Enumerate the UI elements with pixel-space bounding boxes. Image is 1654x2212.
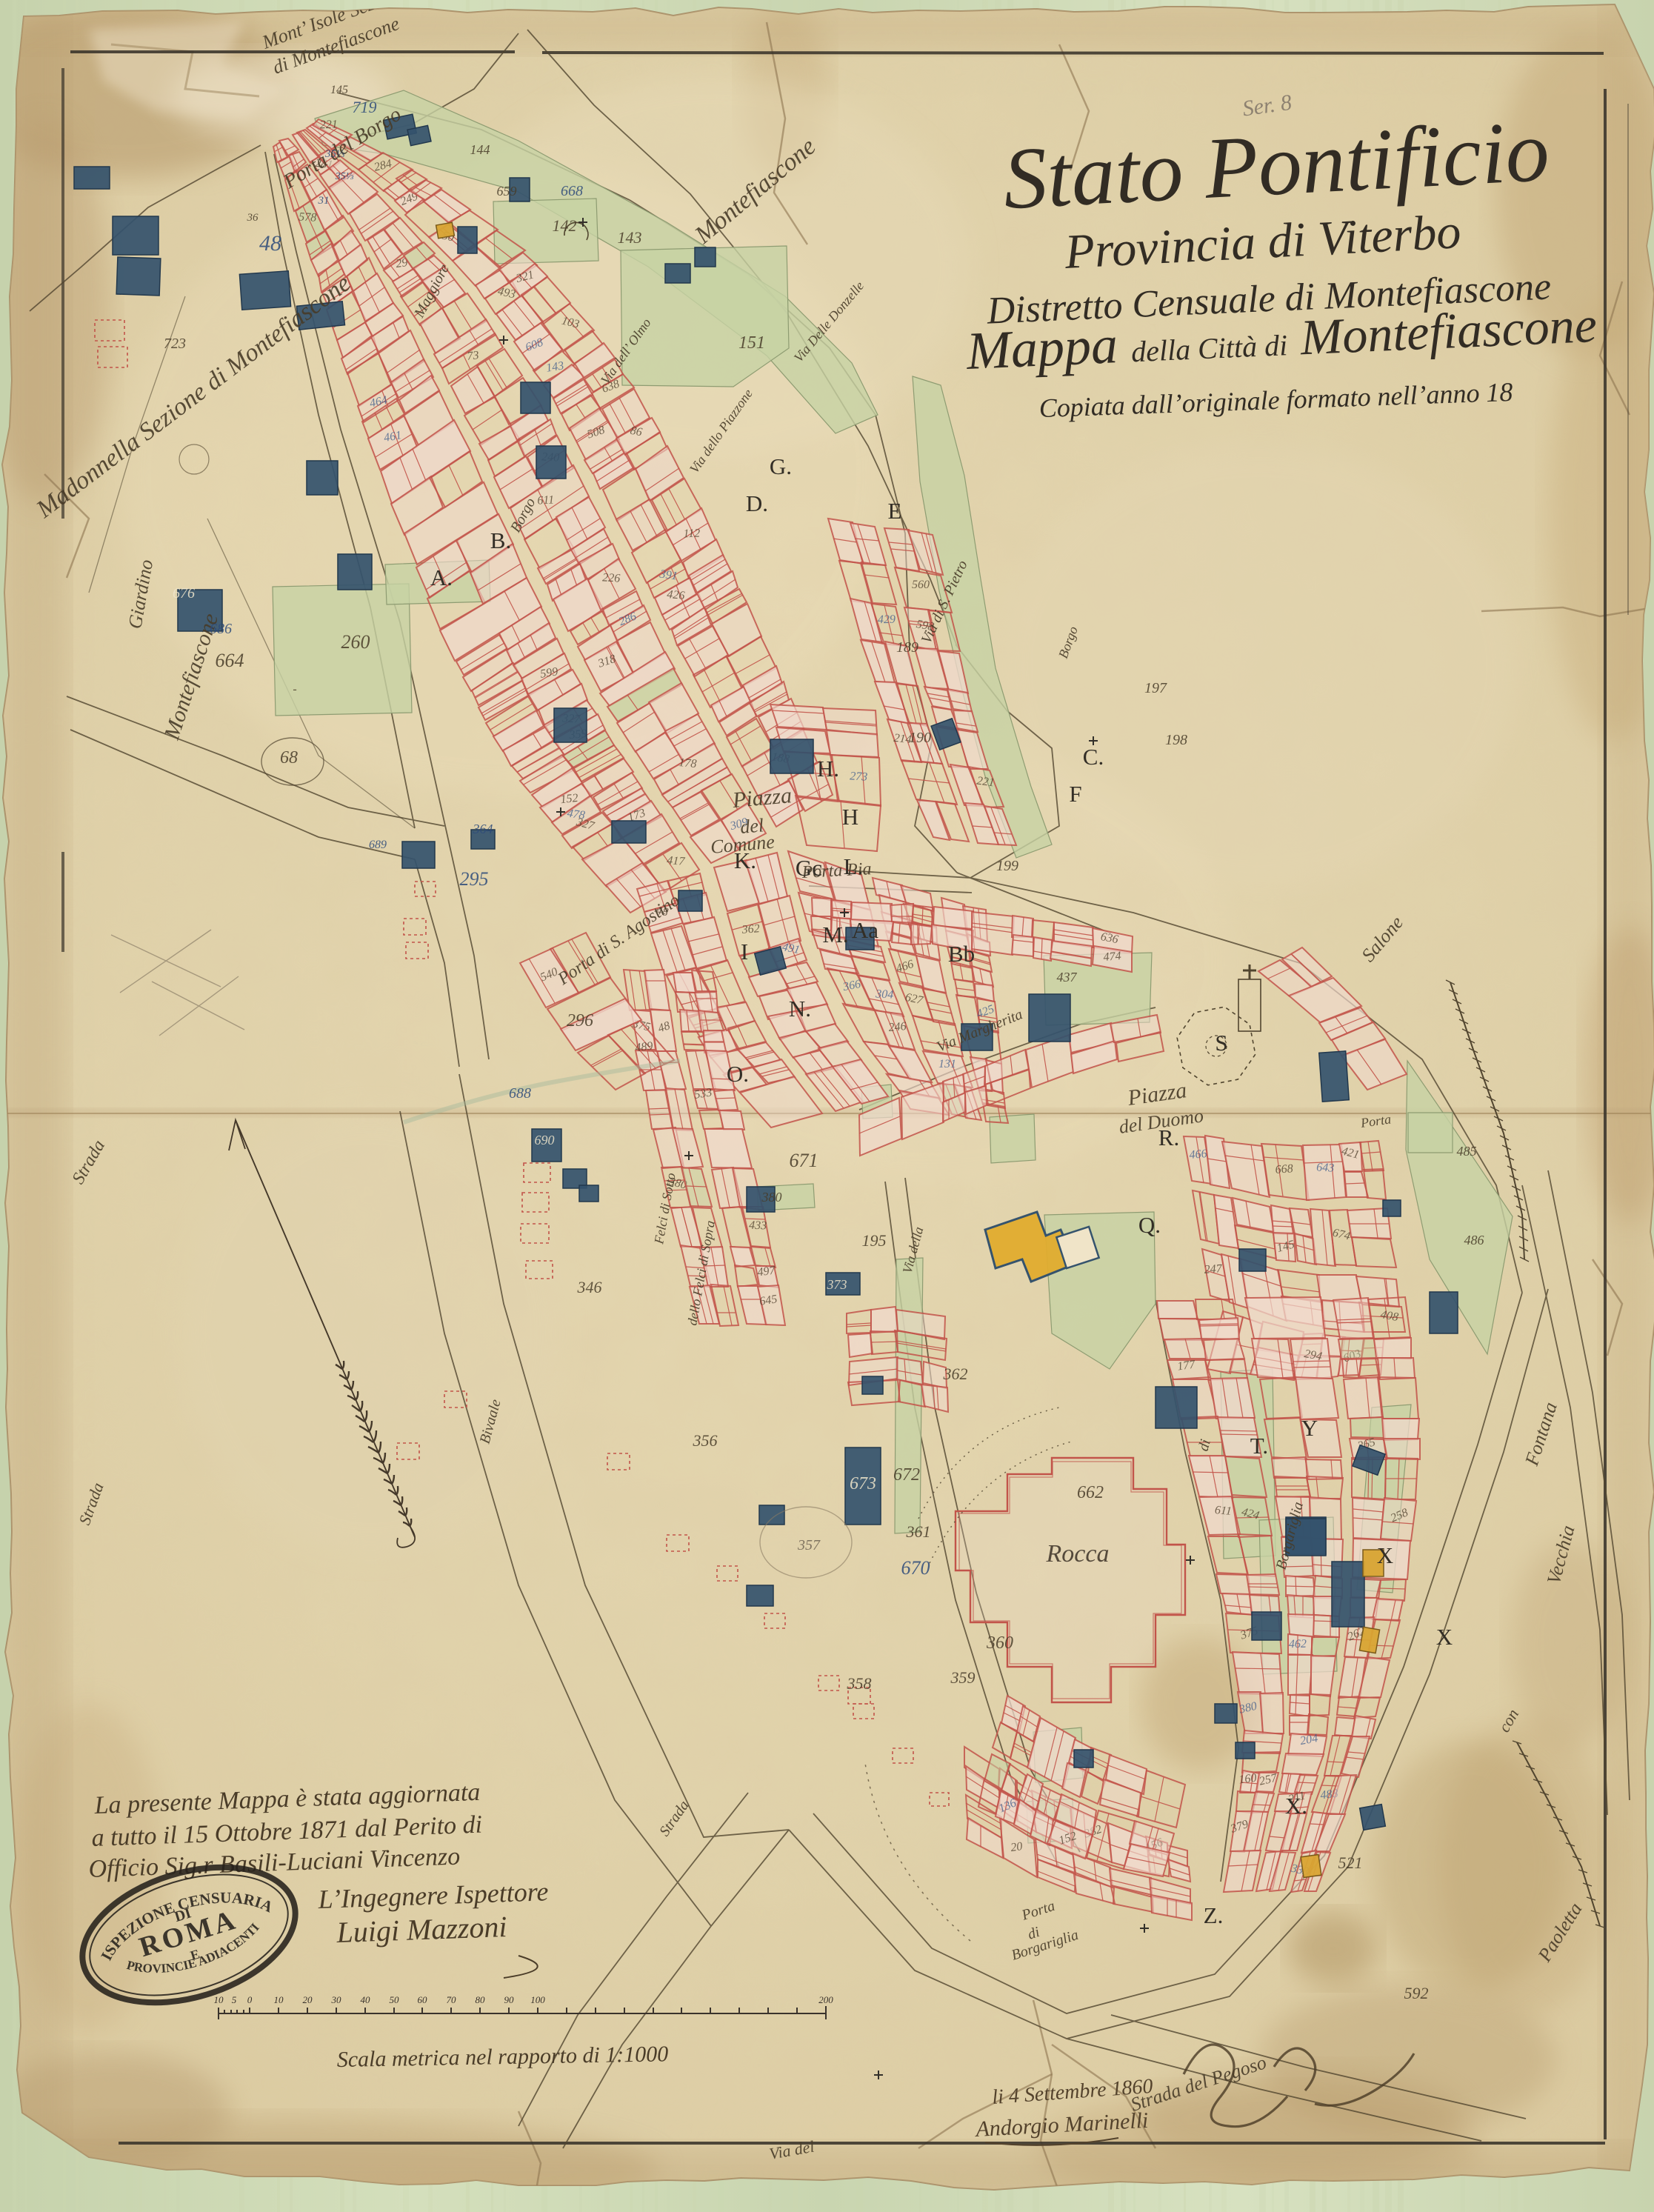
svg-text:C.: C.	[1083, 744, 1104, 770]
svg-text:273: 273	[850, 770, 868, 783]
svg-text:G.: G.	[770, 453, 792, 479]
svg-text:80: 80	[476, 1994, 486, 2005]
svg-text:221: 221	[320, 119, 339, 132]
svg-text:O.: O.	[727, 1061, 749, 1087]
svg-text:131: 131	[938, 1058, 956, 1070]
svg-text:462: 462	[1289, 1638, 1307, 1650]
svg-text:D.: D.	[746, 490, 768, 516]
svg-text:35⅓: 35⅓	[324, 148, 345, 160]
svg-text:670: 670	[901, 1557, 930, 1579]
svg-text:295: 295	[460, 868, 489, 890]
svg-text:60: 60	[418, 1994, 428, 2005]
svg-text:391: 391	[658, 567, 678, 582]
svg-text:364: 364	[473, 822, 493, 836]
svg-text:668: 668	[561, 183, 583, 199]
svg-text:T.: T.	[1250, 1433, 1268, 1459]
svg-text:373: 373	[827, 1277, 847, 1292]
svg-text:Piazza: Piazza	[731, 783, 793, 813]
svg-text:160: 160	[1238, 1772, 1258, 1787]
svg-text:686: 686	[210, 621, 232, 637]
svg-text:X: X	[1436, 1624, 1453, 1650]
svg-text:474: 474	[1103, 950, 1121, 964]
svg-text:358: 358	[847, 1674, 872, 1693]
svg-text:35⅓: 35⅓	[335, 171, 354, 182]
svg-text:688: 688	[509, 1085, 531, 1102]
svg-text:247: 247	[1204, 1262, 1223, 1276]
svg-text:I: I	[741, 939, 748, 965]
svg-text:100: 100	[530, 1994, 545, 2005]
svg-text:659: 659	[497, 184, 517, 199]
svg-text:143: 143	[618, 228, 642, 247]
svg-text:690: 690	[535, 1133, 555, 1147]
svg-text:466: 466	[1189, 1147, 1207, 1162]
svg-text:X.: X.	[1285, 1793, 1307, 1819]
svg-text:662: 662	[1077, 1483, 1104, 1502]
svg-text:Luigi Mazzoni: Luigi Mazzoni	[336, 1910, 507, 1949]
svg-text:Gc: Gc	[796, 855, 822, 881]
svg-text:86: 86	[629, 424, 643, 439]
svg-text:200: 200	[818, 1994, 833, 2005]
svg-text:611: 611	[1214, 1504, 1232, 1518]
svg-text:356: 356	[693, 1431, 718, 1450]
svg-text:Bb: Bb	[948, 941, 975, 967]
svg-text:M.: M.	[822, 922, 848, 947]
svg-text:142: 142	[553, 216, 577, 235]
svg-text:68: 68	[280, 748, 298, 767]
svg-text:X: X	[1377, 1542, 1393, 1568]
svg-text:521: 521	[1338, 1853, 1363, 1872]
svg-text:151: 151	[738, 333, 765, 353]
svg-text:723: 723	[164, 336, 186, 352]
svg-text:B.: B.	[490, 527, 511, 553]
svg-text:A.: A.	[430, 564, 453, 590]
svg-text:226: 226	[602, 571, 621, 584]
svg-text:5: 5	[232, 1994, 237, 2005]
svg-text:429: 429	[878, 613, 896, 626]
svg-text:70: 70	[447, 1994, 457, 2005]
svg-text:178: 178	[678, 756, 697, 770]
svg-text:20: 20	[303, 1994, 313, 2005]
svg-text:260: 260	[341, 631, 370, 653]
svg-text:361: 361	[906, 1522, 931, 1541]
svg-text:433: 433	[749, 1219, 767, 1233]
svg-text:199: 199	[996, 858, 1018, 874]
svg-text:Q.: Q.	[1138, 1212, 1161, 1238]
svg-text:0: 0	[247, 1994, 253, 2005]
svg-text:L.: L.	[844, 853, 864, 879]
svg-text:Z.: Z.	[1204, 1902, 1224, 1928]
svg-text:152: 152	[560, 792, 579, 806]
svg-text:30: 30	[331, 1994, 342, 2005]
svg-text:362: 362	[943, 1365, 968, 1383]
svg-text:380: 380	[761, 1190, 782, 1205]
svg-text:592: 592	[1404, 1984, 1429, 2002]
svg-text:672: 672	[893, 1465, 920, 1485]
svg-text:486: 486	[1464, 1233, 1484, 1247]
svg-text:48: 48	[259, 231, 281, 256]
svg-text:664: 664	[216, 650, 244, 671]
svg-text:676: 676	[173, 585, 195, 602]
svg-text:346: 346	[577, 1278, 602, 1296]
svg-text:221: 221	[976, 775, 996, 790]
svg-text:R.: R.	[1158, 1125, 1179, 1150]
svg-text:246: 246	[888, 1020, 907, 1034]
svg-text:437: 437	[1057, 970, 1078, 985]
svg-text:Aa: Aa	[852, 917, 878, 943]
svg-text:426: 426	[667, 588, 685, 602]
svg-text:197: 197	[1144, 680, 1167, 696]
svg-text:Y: Y	[1301, 1415, 1318, 1441]
svg-text:112: 112	[683, 527, 700, 541]
svg-text:36: 36	[247, 212, 259, 224]
svg-text:189: 189	[896, 639, 918, 656]
svg-text:643: 643	[1316, 1161, 1335, 1174]
svg-text:40: 40	[361, 1994, 371, 2005]
svg-text:417: 417	[667, 854, 686, 868]
svg-text:304: 304	[875, 987, 894, 1001]
svg-text:K.: K.	[734, 847, 756, 873]
svg-text:673: 673	[850, 1474, 876, 1493]
svg-text:359: 359	[950, 1668, 976, 1687]
svg-text:-: -	[293, 683, 296, 696]
svg-text:362: 362	[741, 922, 760, 936]
svg-text:E: E	[888, 498, 902, 524]
svg-text:671: 671	[790, 1150, 818, 1171]
svg-text:20: 20	[1010, 1840, 1023, 1854]
svg-text:357: 357	[797, 1537, 821, 1553]
svg-text:50: 50	[390, 1994, 400, 2005]
svg-text:497: 497	[757, 1265, 777, 1279]
svg-text:H.: H.	[817, 756, 839, 782]
svg-text:H: H	[842, 804, 858, 830]
svg-text:S: S	[1215, 1030, 1227, 1056]
svg-text:31: 31	[318, 195, 330, 207]
svg-text:668: 668	[1275, 1162, 1293, 1176]
svg-text:10: 10	[274, 1994, 284, 2005]
svg-text:360: 360	[986, 1633, 1013, 1653]
svg-text:296: 296	[567, 1011, 593, 1030]
svg-text:489: 489	[635, 1040, 654, 1055]
svg-text:73: 73	[467, 349, 480, 363]
svg-text:719: 719	[353, 98, 377, 116]
svg-text:560: 560	[912, 579, 930, 591]
svg-text:578: 578	[299, 210, 317, 224]
svg-text:195: 195	[862, 1231, 887, 1250]
svg-text:F: F	[1069, 781, 1081, 807]
svg-text:611: 611	[537, 493, 555, 507]
svg-text:144: 144	[470, 142, 490, 157]
svg-text:145: 145	[330, 84, 348, 96]
svg-text:198: 198	[1165, 732, 1187, 748]
svg-text:Rocca: Rocca	[1046, 1540, 1110, 1568]
svg-text:689: 689	[369, 839, 387, 851]
svg-text:177: 177	[1176, 1358, 1196, 1373]
svg-text:10: 10	[214, 1994, 224, 2005]
svg-text:485: 485	[1457, 1144, 1477, 1159]
svg-text:190: 190	[909, 730, 931, 746]
svg-text:N.: N.	[789, 996, 811, 1022]
svg-text:90: 90	[504, 1994, 515, 2005]
